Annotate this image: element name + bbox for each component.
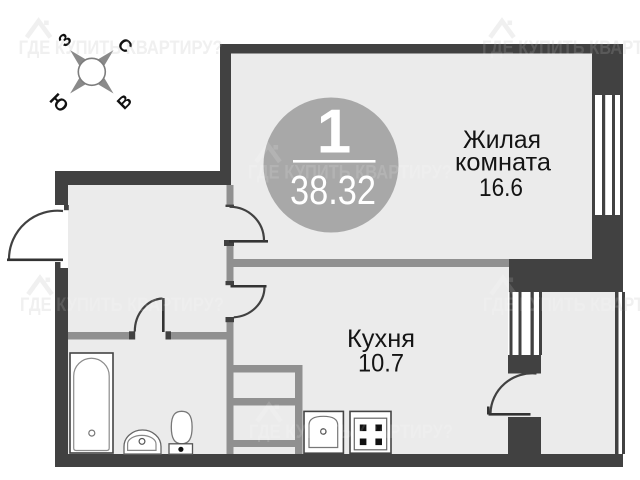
svg-text:1: 1 [317,98,351,167]
svg-text:ГДЕ КУПИТЬ КВАРТИРУ?: ГДЕ КУПИТЬ КВАРТИРУ? [19,38,223,59]
svg-text:16.6: 16.6 [479,174,523,202]
svg-text:ГДЕ КУПИТЬ КВАРТИРУ?: ГДЕ КУПИТЬ КВАРТИРУ? [20,295,224,316]
svg-text:10.7: 10.7 [358,350,404,378]
svg-text:ГДЕ КУПИТЬ КВАРТИРУ?: ГДЕ КУПИТЬ КВАРТИРУ? [482,38,640,59]
svg-text:комната: комната [455,149,551,177]
svg-text:ГДЕ КУПИТЬ КВАРТИРУ?: ГДЕ КУПИТЬ КВАРТИРУ? [483,295,640,316]
svg-text:ГДЕ КУПИТЬ КВАРТИРУ?: ГДЕ КУПИТЬ КВАРТИРУ? [248,163,452,184]
svg-text:ГДЕ КУПИТЬ КВАРТИРУ?: ГДЕ КУПИТЬ КВАРТИРУ? [249,422,453,443]
